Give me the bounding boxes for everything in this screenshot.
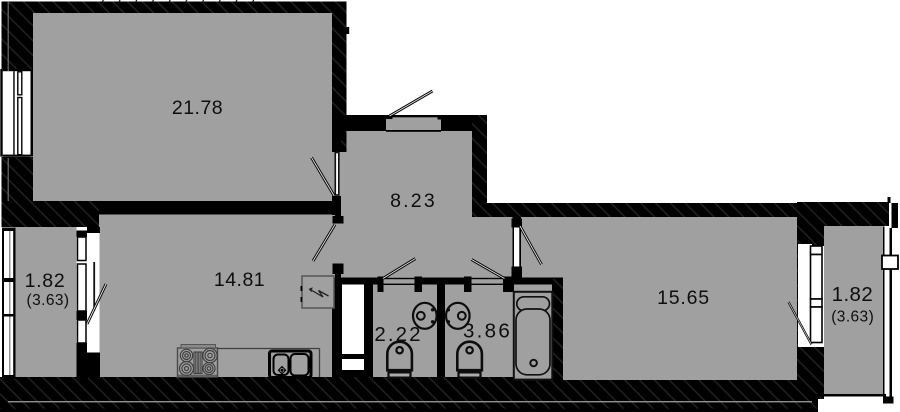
svg-text:1.82: 1.82 <box>832 283 874 306</box>
svg-text:21.78: 21.78 <box>172 97 223 119</box>
svg-text:(3.63): (3.63) <box>27 292 70 309</box>
svg-text:15.65: 15.65 <box>657 287 710 309</box>
svg-text:2.22: 2.22 <box>374 323 422 346</box>
svg-text:14.81: 14.81 <box>214 269 265 291</box>
svg-text:1.82: 1.82 <box>25 270 66 292</box>
svg-text:8.23: 8.23 <box>390 190 437 212</box>
svg-text:(3.63): (3.63) <box>831 309 874 326</box>
svg-text:3.86: 3.86 <box>463 320 512 343</box>
